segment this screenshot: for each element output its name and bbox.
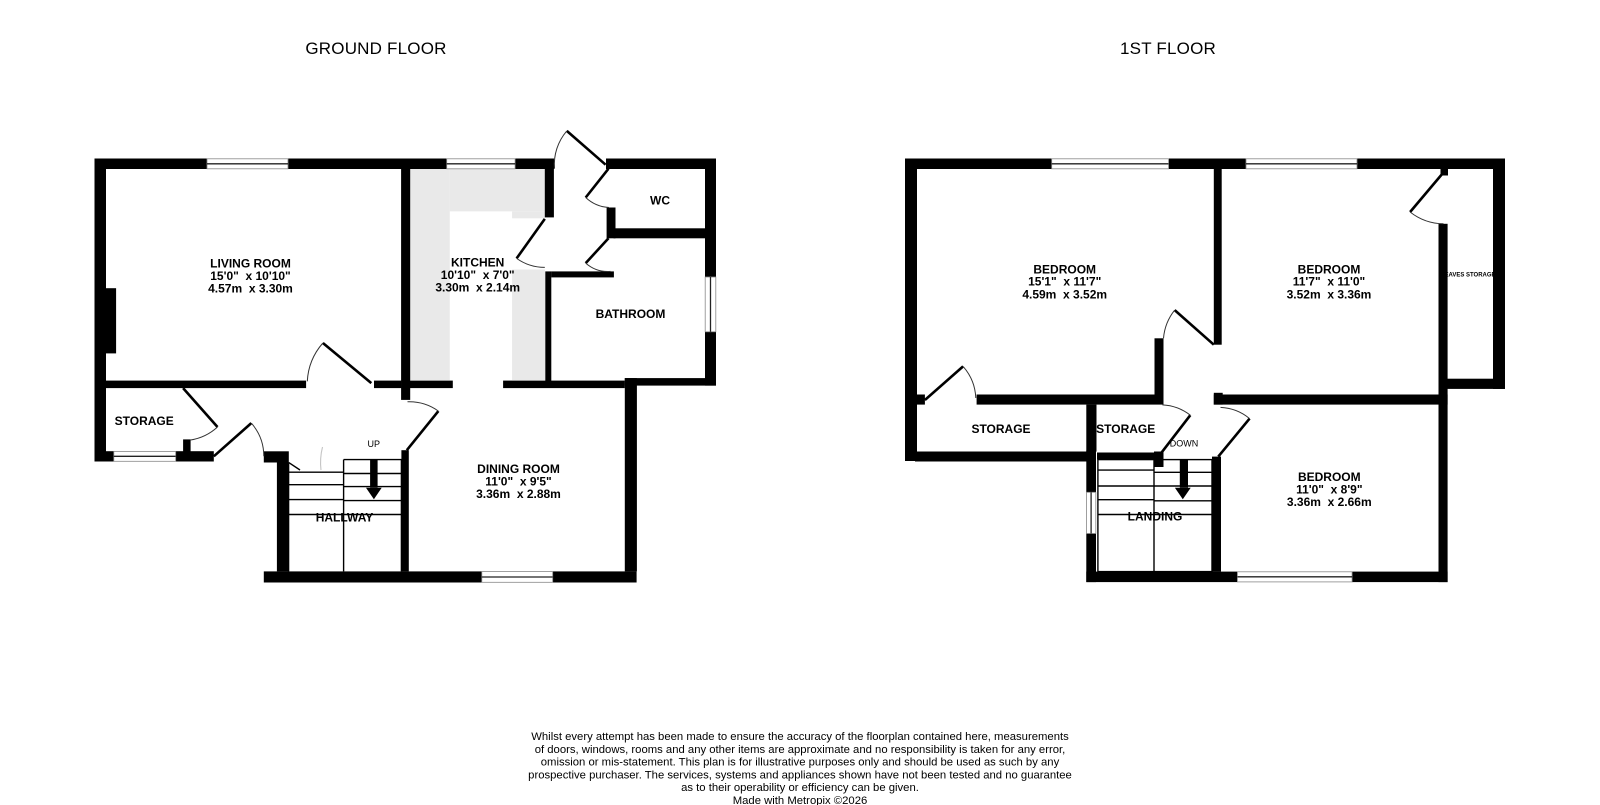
svg-text:as to their operability or eff: as to their operability or efficiency ca… [681, 782, 919, 794]
svg-text:Made with Metropix ©2026: Made with Metropix ©2026 [733, 795, 868, 805]
svg-text:3.36m x 2.88m: 3.36m x 2.88m [476, 487, 561, 501]
svg-text:Whilst every attempt has been: Whilst every attempt has been made to en… [531, 731, 1069, 743]
svg-text:EAVES STORAGE: EAVES STORAGE [1444, 273, 1495, 279]
svg-text:3.36m x 2.66m: 3.36m x 2.66m [1287, 495, 1372, 509]
svg-text:BATHROOM: BATHROOM [596, 307, 666, 321]
svg-text:3.52m x 3.36m: 3.52m x 3.36m [1287, 288, 1372, 302]
svg-text:DOWN: DOWN [1170, 439, 1199, 449]
svg-text:GROUND FLOOR: GROUND FLOOR [305, 39, 446, 58]
svg-text:STORAGE: STORAGE [971, 422, 1030, 436]
svg-text:4.59m x 3.52m: 4.59m x 3.52m [1022, 288, 1107, 302]
svg-text:11'7" x 11'0": 11'7" x 11'0" [1293, 275, 1365, 289]
svg-text:4.57m x 3.30m: 4.57m x 3.30m [208, 282, 293, 296]
svg-text:of doors, windows, rooms and a: of doors, windows, rooms and any other i… [535, 744, 1066, 756]
svg-text:WC: WC [650, 194, 670, 208]
svg-text:HALLWAY: HALLWAY [316, 511, 374, 525]
svg-text:STORAGE: STORAGE [115, 414, 174, 428]
svg-text:prospective purchaser. The ser: prospective purchaser. The services, sys… [528, 769, 1072, 781]
svg-text:omission or mis-statement. Thi: omission or mis-statement. This plan is … [541, 757, 1060, 769]
svg-text:15'1" x 11'7": 15'1" x 11'7" [1028, 275, 1101, 289]
svg-text:UP: UP [368, 439, 381, 449]
svg-text:1ST FLOOR: 1ST FLOOR [1120, 39, 1216, 58]
svg-text:STORAGE: STORAGE [1096, 422, 1155, 436]
svg-text:3.30m x 2.14m: 3.30m x 2.14m [435, 281, 520, 295]
svg-text:LANDING: LANDING [1128, 510, 1183, 524]
